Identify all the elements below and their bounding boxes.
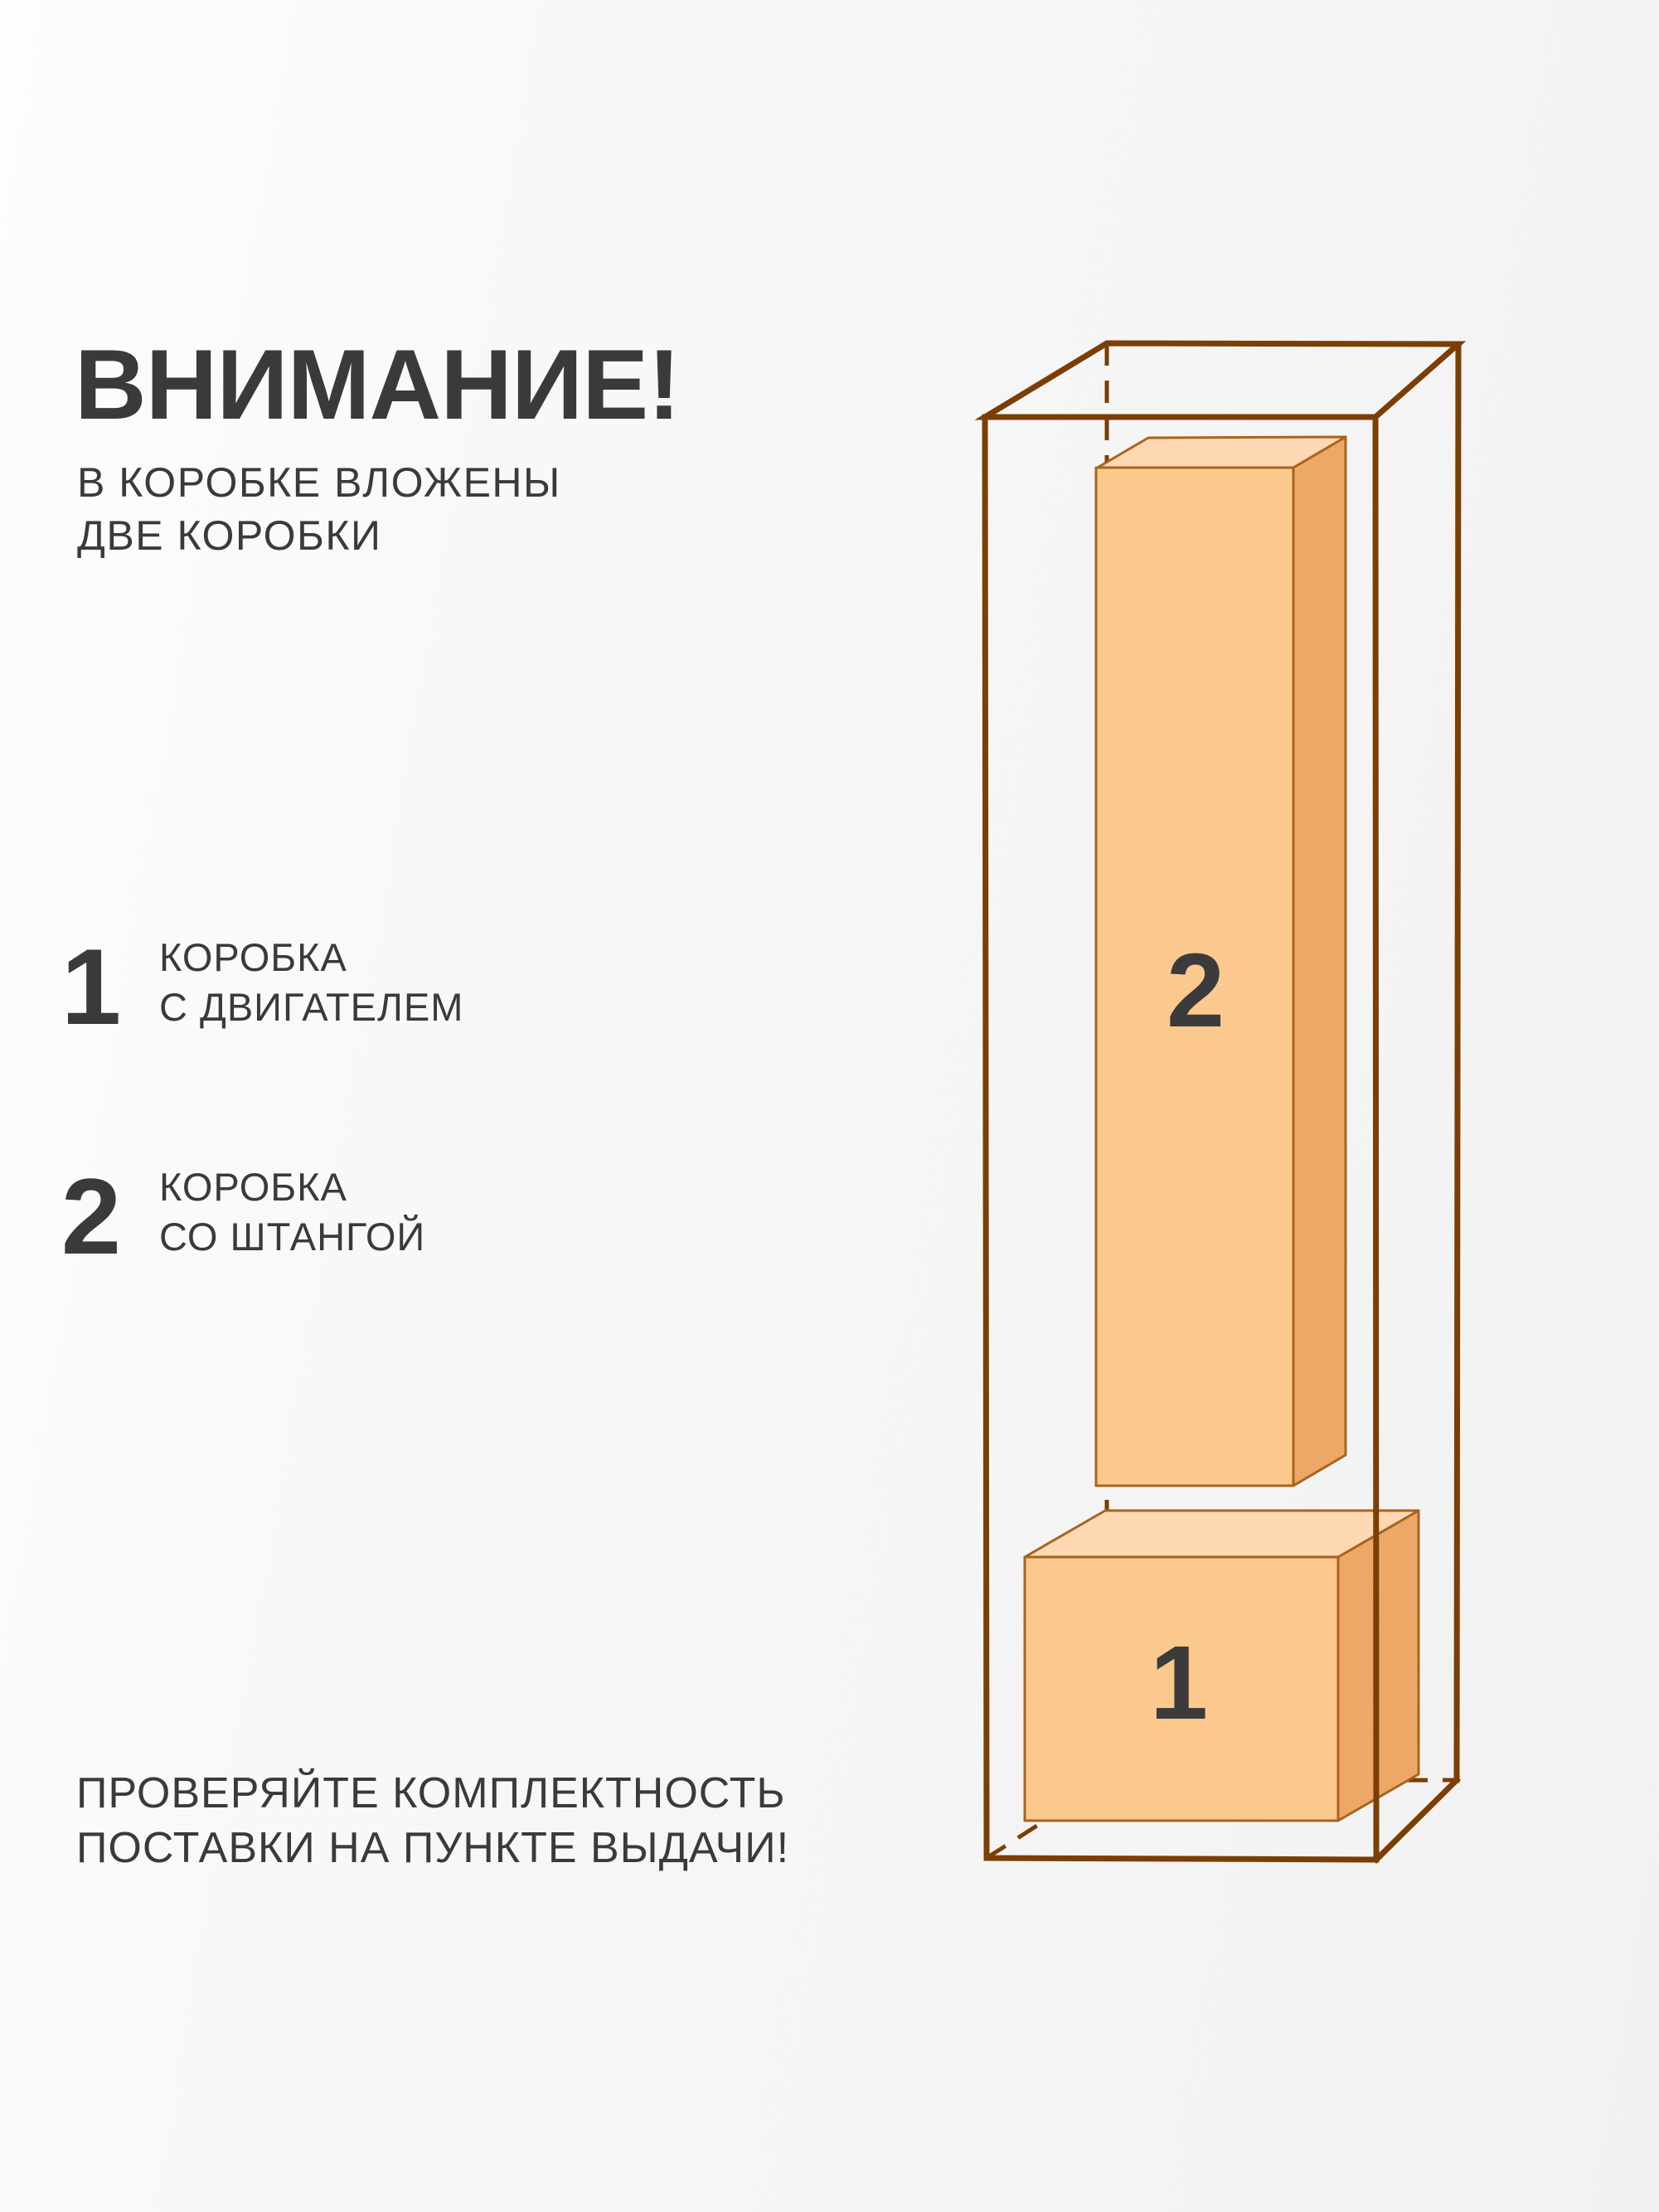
carton-1-number: 1 [1150, 1624, 1208, 1741]
infographic-canvas: ВНИМАНИЕ! В КОРОБКЕ ВЛОЖЕНЫДВЕ КОРОБКИ 1… [0, 0, 1659, 2212]
carton-2-number: 2 [1167, 932, 1225, 1049]
wireframe-top-face [985, 343, 1458, 417]
carton-2: 2 [1096, 437, 1346, 1486]
wireframe-back-right-edge [1457, 344, 1458, 1780]
packaging-diagram: 2 1 [0, 0, 1659, 2212]
carton-1: 1 [1025, 1511, 1419, 1821]
carton-2-side-face [1293, 437, 1346, 1486]
